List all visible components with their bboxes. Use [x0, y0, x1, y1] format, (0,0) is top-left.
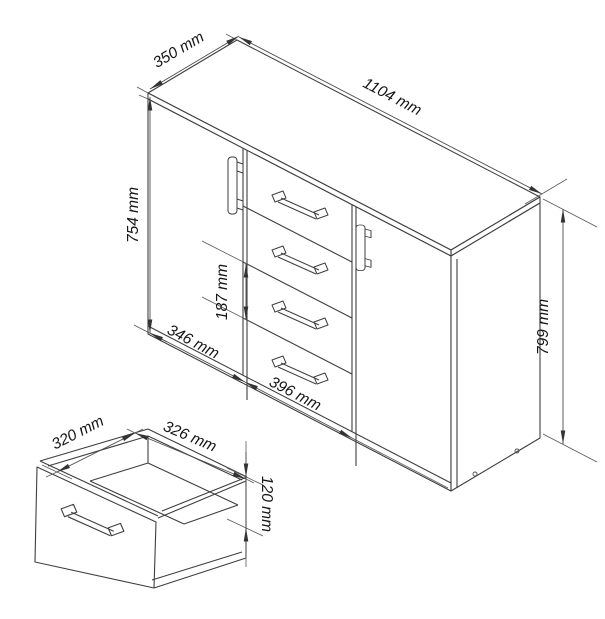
drawer-detail-drawing	[35, 429, 247, 588]
dim-label-cabinet-front-height: 754 mm	[125, 187, 142, 243]
furniture-dimension-drawing: 350 mm 1104 mm 754 mm 187 mm 346 mm 396 …	[0, 0, 605, 619]
dim-label-cabinet-total-height: 799 mm	[535, 299, 552, 355]
dim-label-detail-depth: 320 mm	[49, 413, 107, 454]
technical-drawing-canvas: 350 mm 1104 mm 754 mm 187 mm 346 mm 396 …	[0, 0, 605, 619]
dim-label-detail-height: 120 mm	[258, 476, 275, 532]
drawer-front-panel	[35, 467, 156, 588]
dim-label-detail-width: 326 mm	[161, 418, 219, 456]
cabinet-drawing	[148, 40, 540, 491]
dim-label-drawer-pitch: 187 mm	[214, 264, 231, 320]
